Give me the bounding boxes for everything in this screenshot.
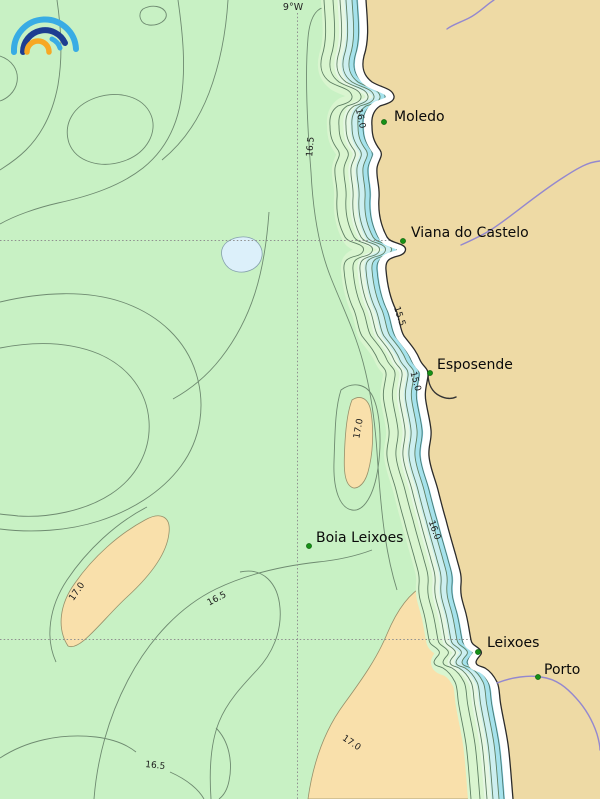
city-marker-viana-do-castelo xyxy=(400,238,405,243)
isotherm-label: 16.5 xyxy=(305,136,317,157)
cold-water-patch xyxy=(222,237,263,272)
city-marker-leixoes xyxy=(475,649,480,654)
longitude-label: 9°W xyxy=(283,2,304,13)
city-marker-esposende xyxy=(427,370,432,375)
city-label-viana-do-castelo: Viana do Castelo xyxy=(411,225,529,241)
city-label-moledo: Moledo xyxy=(394,109,445,125)
city-marker-moledo xyxy=(381,119,386,124)
isotherm-label: 16.5 xyxy=(145,760,166,772)
city-label-leixoes: Leixoes xyxy=(487,635,539,651)
city-label-boia-leixoes: Boia Leixoes xyxy=(316,530,403,546)
city-marker-boia-leixoes xyxy=(306,543,311,548)
map-canvas: 16.5 16.0 15.5 15.0 17.0 16.0 17.0 16.5 … xyxy=(0,0,600,799)
city-label-porto: Porto xyxy=(544,662,580,678)
city-marker-porto xyxy=(535,674,540,679)
city-label-esposende: Esposende xyxy=(437,357,513,373)
sst-map: 16.5 16.0 15.5 15.0 17.0 16.0 17.0 16.5 … xyxy=(0,0,600,799)
